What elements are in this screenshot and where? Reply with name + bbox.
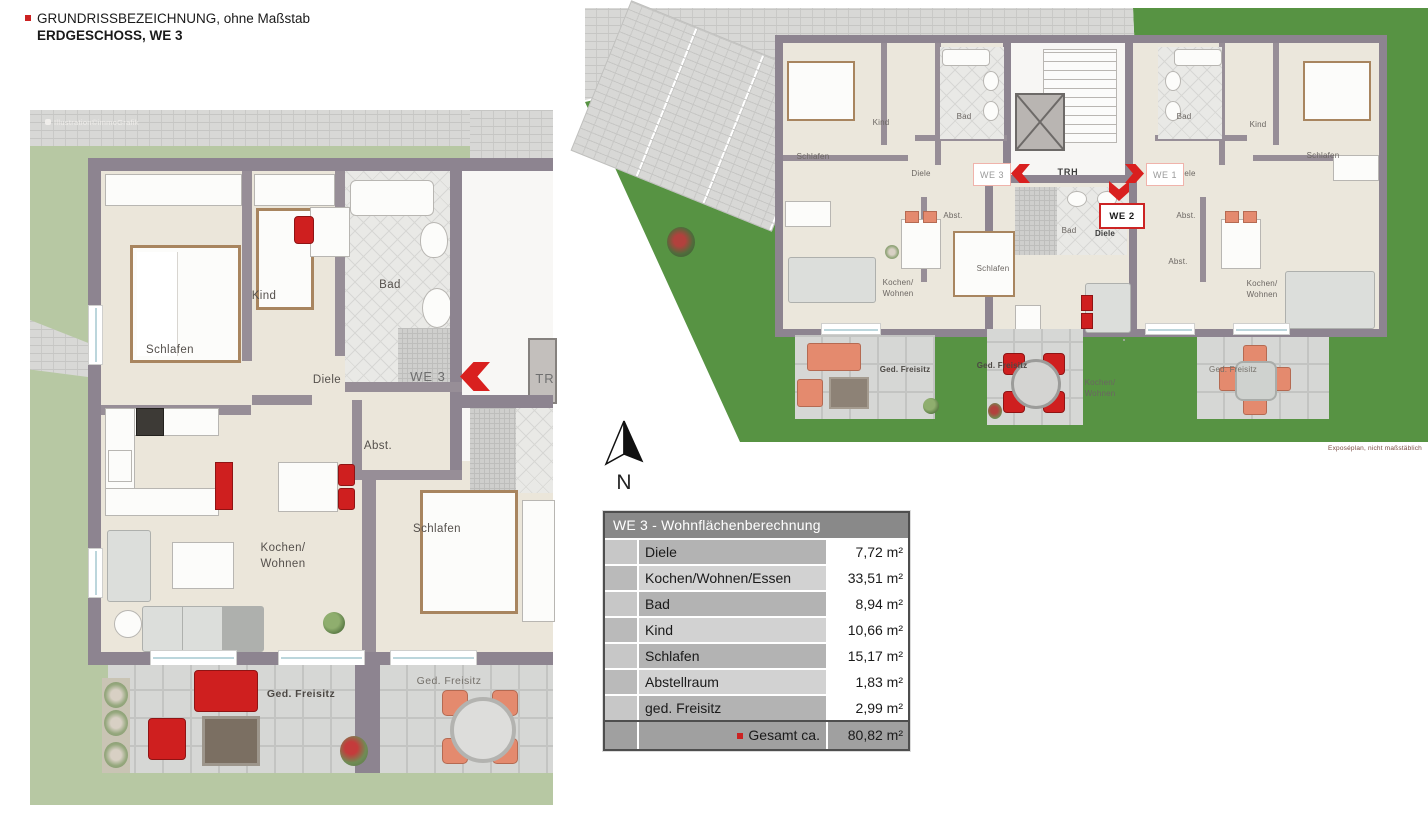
total-value: 80,82 m²: [828, 722, 908, 749]
armchair: [107, 530, 151, 602]
bush-icon: [667, 227, 695, 257]
window: [88, 548, 103, 598]
dining-table-we3: [901, 219, 941, 269]
wall: [252, 395, 312, 405]
sofa-we1: [1285, 271, 1375, 329]
trh-partial-label: TR: [530, 371, 560, 386]
bath-we2-shower: [1015, 187, 1057, 255]
label-we3-bad: Bad: [934, 112, 994, 121]
badge-we1: WE 1: [1146, 163, 1184, 186]
sink: [422, 288, 452, 328]
dining-bench: [215, 462, 233, 510]
row-label: Abstellraum: [639, 670, 828, 694]
table-row: ged. Freisitz2,99 m²: [605, 694, 908, 720]
north-arrow-icon: [598, 418, 650, 470]
overview-floor-plan: Schlafen Kind Bad Diele Abst. Kochen/ Wo…: [585, 5, 1428, 455]
label-we1-kind: Kind: [1228, 120, 1288, 129]
bed-we1: [1303, 61, 1371, 121]
row-value: 8,94 m²: [828, 592, 908, 616]
patio-table: [829, 377, 869, 409]
bathtub: [350, 180, 434, 216]
title-line2: ERDGESCHOSS, WE 3: [37, 27, 310, 44]
wall: [462, 395, 553, 408]
label-we2-freisitz: Ged. Freisitz: [962, 361, 1042, 370]
neighbor-bath-floor: [516, 408, 553, 493]
plant-icon: [323, 612, 345, 634]
table-total-row: Gesamt ca. 80,82 m²: [605, 720, 908, 749]
watermark-icon: [45, 119, 51, 125]
flowers-icon: [104, 742, 128, 768]
table-row: Kochen/Wohnen/Essen33,51 m²: [605, 564, 908, 590]
sofa-we2: [1123, 339, 1125, 341]
chair: [905, 211, 919, 223]
row-marker: [605, 540, 639, 564]
watermark: Illustration©immoGrafik: [45, 118, 139, 127]
label-we3-diele: Diele: [891, 169, 951, 178]
page-title: GRUNDRISSBEZEICHNUNG, ohne Maßstab ERDGE…: [25, 10, 310, 44]
label-we1-schlafen: Schlafen: [1293, 151, 1353, 160]
label-we1-kochen: Kochen/ Wohnen: [1232, 278, 1292, 300]
toilet: [1165, 71, 1181, 91]
desk-chair: [294, 216, 314, 244]
detail-floor-plan: Illustration©immoGrafik Schlafen Kind Ba…: [30, 110, 553, 805]
label-we3-freisitz: Ged. Freisitz: [865, 365, 945, 374]
row-label: Kind: [639, 618, 828, 642]
room-label-kochen-wohnen: Kochen/ Wohnen: [238, 540, 328, 572]
patio-round-table: [450, 697, 516, 763]
row-marker: [605, 696, 639, 720]
sofa-we3: [788, 257, 876, 303]
table-row: Abstellraum1,83 m²: [605, 668, 908, 694]
red-bullet-icon: [737, 733, 743, 739]
label-we1-abst-upper: Abst.: [1156, 211, 1216, 220]
row-marker: [605, 566, 639, 590]
window: [88, 305, 103, 365]
dining-table: [278, 462, 338, 512]
sofa: [142, 606, 264, 652]
patio-sofa: [807, 343, 861, 371]
coffee-table: [172, 542, 234, 589]
total-label-text: Gesamt ca.: [748, 727, 820, 743]
row-value: 10,66 m²: [828, 618, 908, 642]
neighbor-shower: [470, 408, 516, 493]
paver-wedge: [30, 315, 88, 377]
kitchen-sink: [108, 450, 132, 482]
kitchen-counter: [105, 488, 219, 516]
label-we1-bad: Bad: [1154, 112, 1214, 121]
bathtub: [1174, 49, 1222, 66]
wardrobe: [522, 500, 555, 622]
bathtub: [942, 49, 990, 66]
red-bullet-icon: [25, 15, 31, 21]
chair: [1081, 295, 1093, 311]
wall: [1125, 43, 1133, 183]
badge-we2: WE 2: [1099, 203, 1145, 229]
row-label: Bad: [639, 592, 828, 616]
label-we1-freisitz: Ged. Freisitz: [1193, 365, 1273, 374]
toilet: [983, 71, 999, 91]
dining-chair: [338, 464, 355, 486]
flowers-icon: [104, 682, 128, 708]
row-value: 15,17 m²: [828, 644, 908, 668]
pillow: [137, 252, 178, 356]
stove: [136, 408, 164, 436]
room-label-schlafen2: Schlafen: [392, 523, 482, 535]
window: [390, 650, 477, 666]
room-label-kind: Kind: [234, 290, 294, 302]
label-we3-abst: Abst.: [923, 211, 983, 220]
wall: [352, 470, 462, 480]
chair: [1243, 211, 1257, 223]
north-arrow: N: [592, 418, 656, 496]
elevator: [1015, 93, 1065, 151]
desk: [310, 207, 350, 257]
wall: [242, 171, 252, 361]
watermark-text: Illustration©immoGrafik: [54, 118, 139, 127]
dining-chair: [338, 488, 355, 510]
room-label-schlafen: Schlafen: [125, 344, 215, 356]
patio-label-right: Ged. Freisitz: [404, 675, 494, 687]
room-label-diele: Diele: [297, 374, 357, 386]
patio-chair: [148, 718, 186, 760]
chair: [1225, 211, 1239, 223]
area-table: WE 3 - Wohnflächenberechnung Diele7,72 m…: [603, 511, 910, 751]
window: [150, 650, 237, 666]
row-label: Schlafen: [639, 644, 828, 668]
row-value: 1,83 m²: [828, 670, 908, 694]
row-value: 33,51 m²: [828, 566, 908, 590]
row-marker: [605, 670, 639, 694]
window: [821, 323, 881, 335]
row-marker: [605, 618, 639, 642]
row-value: 2,99 m²: [828, 696, 908, 720]
page: { "colors":{"accent_red":"#d9201f","wall…: [0, 0, 1428, 825]
wardrobe: [105, 174, 242, 206]
room-label-abst: Abst.: [348, 440, 408, 452]
kitchen-we3: [785, 201, 831, 227]
flowers-icon: [104, 710, 128, 736]
row-label: Diele: [639, 540, 828, 564]
chair: [1081, 313, 1093, 329]
room-label-bad: Bad: [360, 279, 420, 291]
plant-icon: [923, 398, 939, 414]
plan-caption: Exposéplan, nicht maßstäblich: [1328, 445, 1422, 452]
table-row: Bad8,94 m²: [605, 590, 908, 616]
row-marker: [605, 644, 639, 668]
row-label: ged. Freisitz: [639, 696, 828, 720]
label-we3-kind: Kind: [851, 118, 911, 127]
patio-table: [202, 716, 260, 766]
north-label: N: [592, 471, 656, 495]
row-marker: [605, 592, 639, 616]
toilet: [420, 222, 448, 258]
plant-icon: [885, 245, 899, 259]
wall: [1003, 43, 1011, 183]
wall: [362, 480, 376, 652]
toilet: [1067, 191, 1087, 207]
side-table: [114, 610, 142, 638]
table-row: Diele7,72 m²: [605, 538, 908, 564]
window: [1145, 323, 1195, 335]
wardrobe: [254, 174, 335, 206]
wall: [335, 171, 345, 356]
wall: [1273, 43, 1279, 145]
row-value: 7,72 m²: [828, 540, 908, 564]
patio-sofa: [194, 670, 258, 712]
flowers-icon: [340, 736, 368, 766]
badge-we3: WE 3: [973, 163, 1011, 186]
bed-we3: [787, 61, 855, 121]
table-title: WE 3 - Wohnflächenberechnung: [605, 513, 908, 538]
wall: [1200, 197, 1206, 282]
wall: [881, 43, 887, 145]
wall: [450, 171, 462, 471]
title-line1: GRUNDRISSBEZEICHNUNG, ohne Maßstab: [25, 10, 310, 27]
patio-label-left: Ged. Freisitz: [256, 688, 346, 700]
label-we2-kochen: Kochen/ Wohnen: [1070, 377, 1130, 399]
window: [1233, 323, 1290, 335]
dining-table-we1: [1221, 219, 1261, 269]
patio-chair: [797, 379, 823, 407]
neighbor-bed: [420, 490, 518, 614]
row-label: Kochen/Wohnen/Essen: [639, 566, 828, 590]
table-row: Kind10,66 m²: [605, 616, 908, 642]
row-marker: [605, 722, 639, 749]
window: [278, 650, 365, 666]
label-we3-kochen: Kochen/ Wohnen: [868, 277, 928, 299]
total-label: Gesamt ca.: [639, 722, 828, 749]
table-row: Schlafen15,17 m²: [605, 642, 908, 668]
label-we3-schlafen: Schlafen: [781, 152, 845, 161]
label-trh: TRH: [1033, 167, 1103, 177]
unit-badge-we3: WE 3: [395, 369, 461, 384]
label-we2-diele: Diele: [1075, 229, 1135, 238]
label-we1-abst-lower: Abst.: [1148, 257, 1208, 266]
flowers-icon: [988, 403, 1002, 419]
label-we2-schlafen: Schlafen: [963, 264, 1023, 273]
title-text: GRUNDRISSBEZEICHNUNG, ohne Maßstab: [37, 11, 310, 26]
